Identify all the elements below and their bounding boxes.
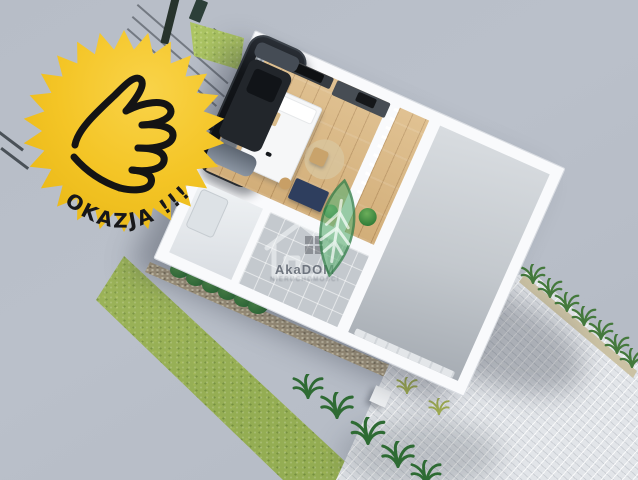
grass-tuft-icon xyxy=(396,377,418,394)
garden-plant-icon xyxy=(410,460,442,480)
fence-post xyxy=(189,0,208,23)
palm-plant-icon xyxy=(619,348,638,368)
badge-star-shape xyxy=(24,30,225,232)
grass-tuft-icon xyxy=(428,398,450,415)
promo-badge: OKAZJA !!! xyxy=(18,25,230,237)
listing-photo: AkaDOM NIERUCHOMOŚCI OKAZJA !!! xyxy=(0,0,638,480)
garden-plant-icon xyxy=(320,392,354,419)
